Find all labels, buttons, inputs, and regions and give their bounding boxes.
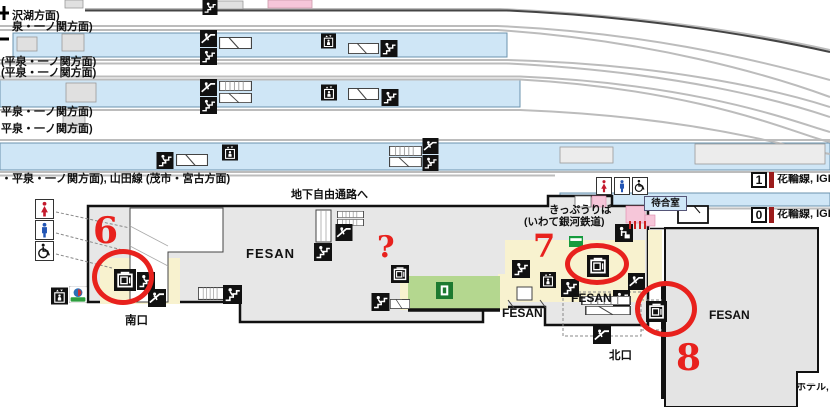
midori-no-madoguchi-logo: [69, 286, 87, 303]
escalator-icon: [200, 30, 217, 47]
escalator-icon: [593, 326, 611, 344]
stairs-icon: [512, 260, 530, 278]
platform-number-badge: 1: [751, 172, 767, 188]
annotation-number-7: 7: [533, 230, 555, 262]
stairs-strip: [219, 37, 252, 49]
ticket-office-label: きっぷうりば: [549, 205, 612, 216]
direction-label: ・平泉・一ノ関方面), 山田線 (茂市・宮古方面): [1, 174, 230, 185]
annotation-question-mark: ?: [377, 233, 395, 263]
stairs-strip: [389, 146, 422, 156]
stairs-strip: [585, 306, 631, 315]
platform-number-badge: 0: [751, 207, 767, 223]
elevator-icon: [321, 33, 336, 49]
stairs-icon: [381, 89, 399, 106]
elevator-icon: [51, 287, 68, 305]
elevator-icon: [222, 144, 238, 161]
direction-label: (平泉・一ノ関方面): [1, 68, 96, 79]
map-base-graphics: [0, 0, 830, 407]
wheelchair-icon: [35, 241, 54, 261]
hotel-label: ホテル,: [796, 383, 830, 393]
south-exit-label: 南口: [125, 316, 148, 328]
annotation-number-6: 6: [93, 213, 118, 249]
stairs-icon: [371, 293, 390, 311]
toilet-men-icon: [614, 177, 630, 195]
toilet-men-icon: [35, 220, 54, 240]
annotation-circle-8: [635, 281, 697, 337]
fesan-label: FESAN: [502, 307, 543, 319]
escalator-icon: [628, 273, 645, 290]
direction-label: 平泉・一ノ関方面): [1, 124, 93, 135]
annotation-circle-6: [92, 249, 154, 305]
platform-line-bar: [769, 207, 774, 223]
stairs-strip: [176, 154, 208, 166]
stairs-strip: [219, 93, 252, 103]
stairs-icon: [202, 0, 218, 15]
escalator-icon: [148, 289, 166, 307]
coin-locker-icon: [391, 265, 409, 283]
platform-line-label: 花輪線, IGR: [777, 209, 830, 220]
stairs-icon: [380, 40, 398, 57]
stairs-icon: [156, 152, 174, 169]
stairs-strip: [348, 88, 379, 100]
station-map: 沢湖方面) 泉・一ノ関方面) (平泉・一ノ関方面) (平泉・一ノ関方面) 平泉・…: [0, 0, 830, 407]
toilet-women-icon: [596, 177, 612, 195]
north-exit-label: 北口: [609, 351, 632, 363]
direction-label: 泉・一ノ関方面): [12, 22, 93, 33]
platform-line-bar: [769, 172, 774, 188]
platform-line-label: 花輪線, IGR: [777, 174, 830, 185]
direction-label: 平泉・一ノ関方面): [1, 107, 93, 118]
stairs-strip: [337, 211, 364, 218]
underground-passage-label: 地下自由通路へ: [291, 190, 368, 201]
escalator-icon: [335, 224, 353, 241]
elevator-icon: [321, 84, 337, 101]
escalator-icon: [422, 138, 439, 154]
stairs-strip: [198, 287, 224, 300]
stairs-icon: [422, 155, 439, 171]
stairs-icon: [200, 48, 217, 65]
fesan-label: FESAN: [246, 247, 295, 260]
stairs-strip: [389, 157, 422, 167]
annotation-number-8: 8: [676, 340, 701, 376]
wheelchair-icon: [632, 177, 648, 195]
toilet-women-icon: [35, 199, 54, 219]
stairs-icon: [200, 97, 217, 114]
fesan-label: FESAN: [709, 309, 750, 321]
stairs-strip: [348, 43, 379, 54]
waiting-room-label: 待合室: [644, 196, 687, 211]
stairs-strip: [390, 299, 410, 309]
ticket-office-operator-label: (いわて銀河鉄道): [524, 217, 605, 228]
ticket-gates: [629, 221, 647, 229]
fesan-label: FESAN: [571, 292, 612, 304]
stairs-strip: [219, 81, 252, 91]
stairs-icon: [223, 285, 242, 304]
stairs-icon: [314, 243, 332, 261]
elevator-icon: [540, 271, 556, 289]
green-zone: [408, 276, 500, 309]
elevator-icon-green: [436, 282, 453, 299]
escalator-icon: [200, 79, 217, 96]
annotation-circle-7: [565, 243, 629, 285]
